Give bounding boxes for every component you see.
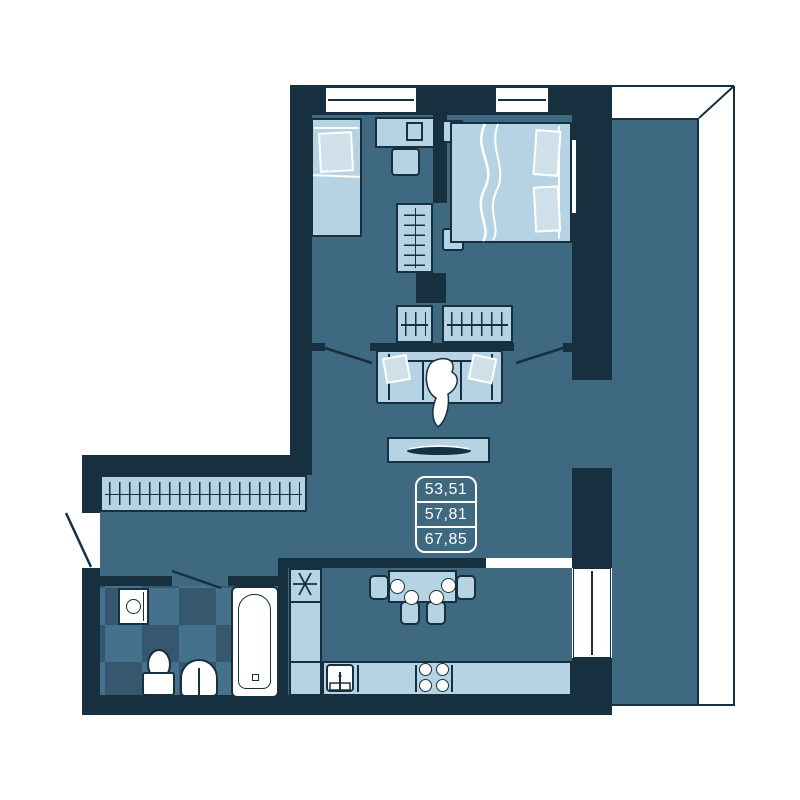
wall-bath-top-right <box>228 576 278 586</box>
bathtub <box>231 586 279 698</box>
wardrobe-corridor-left <box>396 305 433 343</box>
window-bedroom1 <box>325 87 417 113</box>
wall-bath-kitchen <box>278 558 288 695</box>
wall-hall-top <box>82 455 312 475</box>
desk <box>375 117 435 148</box>
area-value-3: 67,85 <box>417 526 475 551</box>
plate-2 <box>441 578 456 593</box>
double-bed-pillow-top <box>532 129 561 177</box>
sofa-pillow-left <box>382 354 411 384</box>
wardrobe-between-bedrooms <box>396 203 433 273</box>
door-entrance[interactable] <box>66 513 91 567</box>
stove-burner-1 <box>419 663 432 676</box>
stove-burner-2 <box>436 663 449 676</box>
area-table: 53,51 57,81 67,85 <box>415 476 477 553</box>
wall-right-upper <box>572 85 612 380</box>
floor-plan: 53,51 57,81 67,85 <box>0 0 800 800</box>
desk-item <box>406 122 423 141</box>
desk-chair[interactable] <box>391 148 420 176</box>
wall-closet-stub <box>416 273 446 303</box>
area-value-2: 57,81 <box>417 501 475 526</box>
toilet-base <box>142 672 175 696</box>
wall-bath-top-left <box>100 576 172 586</box>
area-value-1: 53,51 <box>417 478 475 501</box>
wardrobe-hallway <box>100 475 307 512</box>
window-bedroom2-top <box>495 87 549 113</box>
wall-partition-right-stub <box>563 343 572 352</box>
dining-chair-right[interactable] <box>456 575 476 600</box>
bathroom-sink <box>180 659 218 697</box>
plate-3 <box>404 590 419 605</box>
stove-burner-3 <box>419 679 432 692</box>
wall-left-entry-lower <box>82 568 100 695</box>
outline-corner-diagonal <box>699 86 734 118</box>
wardrobe-corridor-right <box>442 305 513 343</box>
stove-burner-4 <box>436 679 449 692</box>
tv-stand <box>387 437 490 463</box>
dining-chair-left[interactable] <box>369 575 389 600</box>
plate-1 <box>390 579 405 594</box>
plate-4 <box>429 590 444 605</box>
kitchen-sink <box>326 664 354 692</box>
wall-bottom <box>82 695 612 715</box>
fridge-column <box>289 568 322 696</box>
floor-balcony <box>612 118 699 706</box>
floor-balcony-passage <box>572 380 612 468</box>
wall-right-mid <box>572 468 612 568</box>
wall-left-entry-upper <box>82 475 100 513</box>
double-bed-pillow-bottom <box>533 185 561 232</box>
sofa-pillow-right <box>468 354 498 385</box>
wall-left-upper <box>290 85 312 460</box>
wall-partition-left-stub <box>312 343 325 351</box>
single-bed-pillow <box>318 131 354 173</box>
window-kitchen <box>573 568 611 658</box>
wall-kitchen-top <box>288 558 486 568</box>
washing-machine <box>118 588 149 625</box>
